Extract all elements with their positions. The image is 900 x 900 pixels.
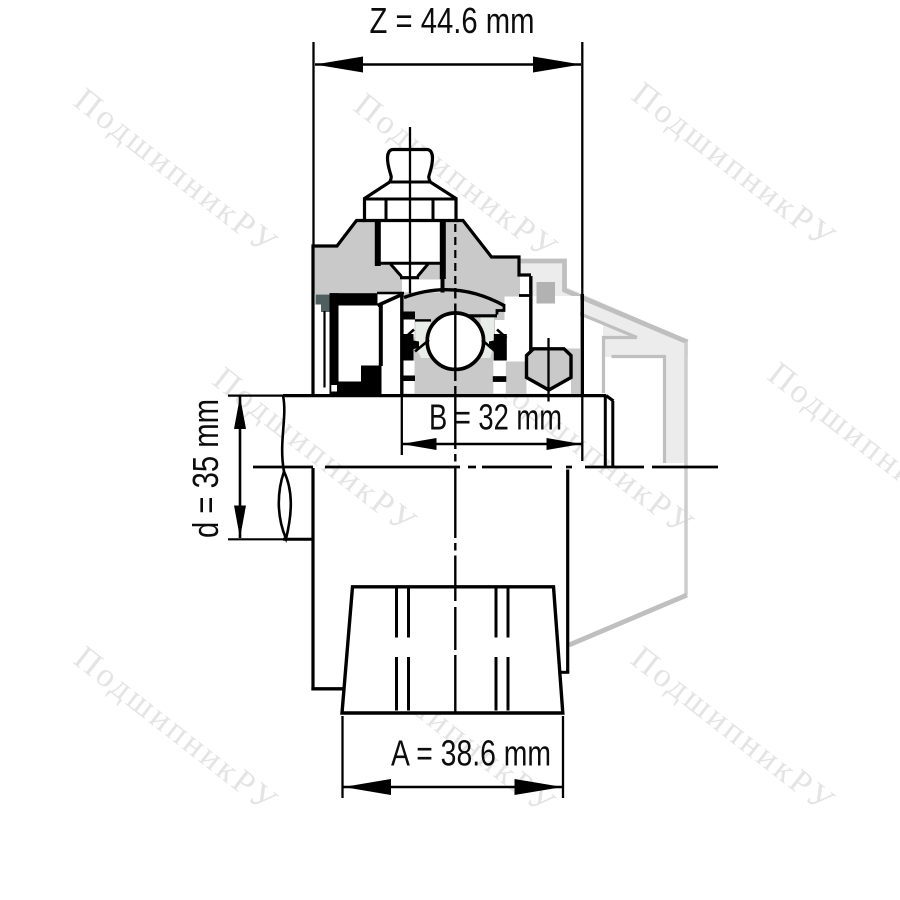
svg-text:d = 35 mm: d = 35 mm [185, 399, 226, 538]
svg-text:Z = 44.6 mm: Z = 44.6 mm [370, 0, 535, 41]
svg-text:A = 38.6 mm: A = 38.6 mm [391, 733, 551, 774]
svg-text:B = 32 mm: B = 32 mm [429, 397, 562, 438]
